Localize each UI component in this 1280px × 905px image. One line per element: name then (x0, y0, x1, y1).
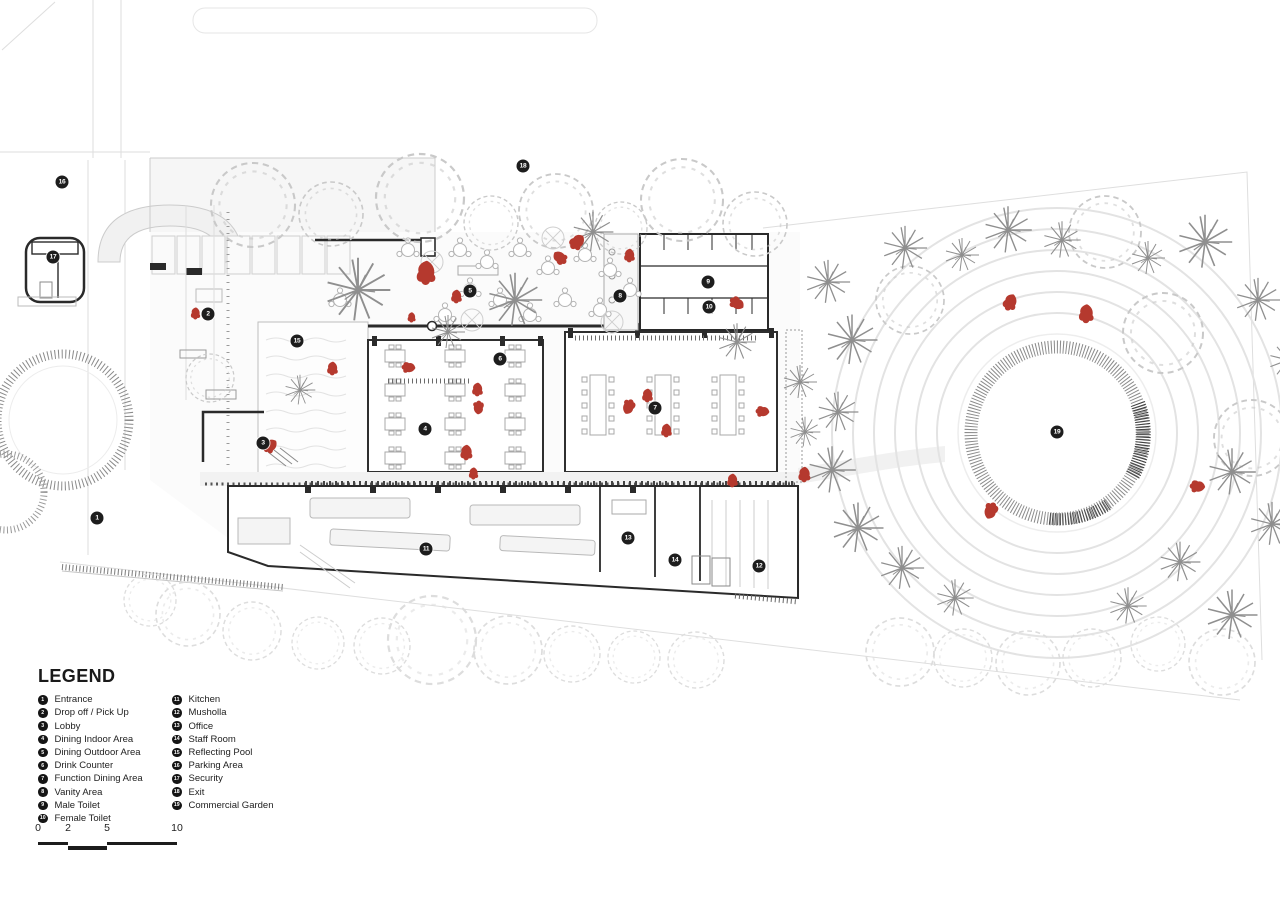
legend-item-1: 1Entrance (38, 695, 166, 705)
plan-marker-6-drink-counter: 6 (494, 353, 507, 366)
plan-marker-3-lobby: 3 (257, 437, 270, 450)
legend-label: Exit (189, 787, 205, 798)
legend-item-15: 15Reflecting Pool (172, 748, 312, 758)
legend-number-badge: 9 (38, 801, 48, 811)
legend-label: Reflecting Pool (189, 747, 253, 758)
legend-number-badge: 16 (172, 761, 182, 771)
plan-marker-15-reflecting-pool: 15 (291, 335, 304, 348)
legend-label: Function Dining Area (55, 773, 143, 784)
legend-item-19: 19Commercial Garden (172, 801, 312, 811)
plan-marker-14-staff-room: 14 (669, 554, 682, 567)
legend-number-badge: 11 (172, 695, 182, 705)
legend-item-5: 5Dining Outdoor Area (38, 748, 166, 758)
legend-label: Lobby (55, 721, 81, 732)
legend-number-badge: 1 (38, 695, 48, 705)
scale-segment-3 (107, 842, 177, 845)
legend-number-badge: 5 (38, 748, 48, 758)
legend-title: LEGEND (38, 666, 115, 687)
legend-item-3: 3Lobby (38, 721, 166, 731)
plan-marker-11-kitchen: 11 (420, 543, 433, 556)
legend-label: Dining Outdoor Area (55, 747, 141, 758)
plan-marker-18-exit: 18 (517, 160, 530, 173)
legend-column-2: 11Kitchen12Musholla13Office14Staff Room1… (172, 695, 312, 814)
legend-number-badge: 15 (172, 748, 182, 758)
legend-item-11: 11Kitchen (172, 695, 312, 705)
legend-item-16: 16Parking Area (172, 761, 312, 771)
scale-bar: 0 2 5 10 (30, 822, 200, 854)
plan-marker-7-function-dining-area: 7 (649, 402, 662, 415)
legend-number-badge: 8 (38, 787, 48, 797)
legend-number-badge: 2 (38, 708, 48, 718)
legend-label: Drop off / Pick Up (55, 707, 129, 718)
legend-item-2: 2Drop off / Pick Up (38, 708, 166, 718)
plan-marker-19-commercial-garden: 19 (1051, 426, 1064, 439)
legend-number-badge: 17 (172, 774, 182, 784)
legend-number-badge: 6 (38, 761, 48, 771)
legend-item-12: 12Musholla (172, 708, 312, 718)
scale-label-5: 5 (104, 822, 110, 834)
legend-label: Security (189, 773, 223, 784)
legend-label: Parking Area (189, 760, 243, 771)
legend-label: Entrance (55, 694, 93, 705)
legend-label: Office (189, 721, 214, 732)
legend-item-8: 8Vanity Area (38, 787, 166, 797)
legend-column-1: 1Entrance2Drop off / Pick Up3Lobby4Dinin… (38, 695, 166, 827)
legend-number-badge: 3 (38, 721, 48, 731)
legend-item-14: 14Staff Room (172, 735, 312, 745)
legend-item-6: 6Drink Counter (38, 761, 166, 771)
legend-item-13: 13Office (172, 721, 312, 731)
site-plan-page: 12345678910111213141516171819 LEGEND 1En… (0, 0, 1280, 905)
legend-label: Musholla (189, 707, 227, 718)
scale-segment-1 (38, 842, 68, 845)
scale-label-0: 0 (35, 822, 41, 834)
plan-marker-10-female-toilet: 10 (703, 301, 716, 314)
plan-marker-8-vanity-area: 8 (614, 290, 627, 303)
legend-number-badge: 14 (172, 735, 182, 745)
legend-label: Drink Counter (55, 760, 114, 771)
legend-item-7: 7Function Dining Area (38, 774, 166, 784)
legend-number-badge: 4 (38, 735, 48, 745)
legend-number-badge: 18 (172, 787, 182, 797)
scale-segment-2 (68, 846, 107, 850)
legend-label: Staff Room (189, 734, 236, 745)
plan-marker-9-male-toilet: 9 (702, 276, 715, 289)
scale-label-2: 2 (65, 822, 71, 834)
plan-marker-5-dining-outdoor-area: 5 (464, 285, 477, 298)
legend-label: Dining Indoor Area (55, 734, 134, 745)
legend-label: Kitchen (189, 694, 221, 705)
plan-marker-1-entrance: 1 (91, 512, 104, 525)
legend-item-9: 9Male Toilet (38, 801, 166, 811)
legend-item-4: 4Dining Indoor Area (38, 735, 166, 745)
legend-label: Commercial Garden (189, 800, 274, 811)
legend-number-badge: 7 (38, 774, 48, 784)
plan-marker-13-office: 13 (622, 532, 635, 545)
legend-label: Vanity Area (55, 787, 103, 798)
legend-item-18: 18Exit (172, 787, 312, 797)
legend-number-badge: 12 (172, 708, 182, 718)
plan-marker-4-dining-indoor-area: 4 (419, 423, 432, 436)
legend-number-badge: 19 (172, 801, 182, 811)
legend-item-17: 17Security (172, 774, 312, 784)
legend-label: Male Toilet (55, 800, 100, 811)
plan-marker-12-musholla: 12 (753, 560, 766, 573)
plan-marker-16-parking-area: 16 (56, 176, 69, 189)
legend: LEGEND 1Entrance2Drop off / Pick Up3Lobb… (38, 666, 115, 695)
plan-marker-17-security: 17 (47, 251, 60, 264)
scale-label-10: 10 (171, 822, 183, 834)
plan-marker-2-drop-off-pick-up: 2 (202, 308, 215, 321)
legend-number-badge: 13 (172, 721, 182, 731)
